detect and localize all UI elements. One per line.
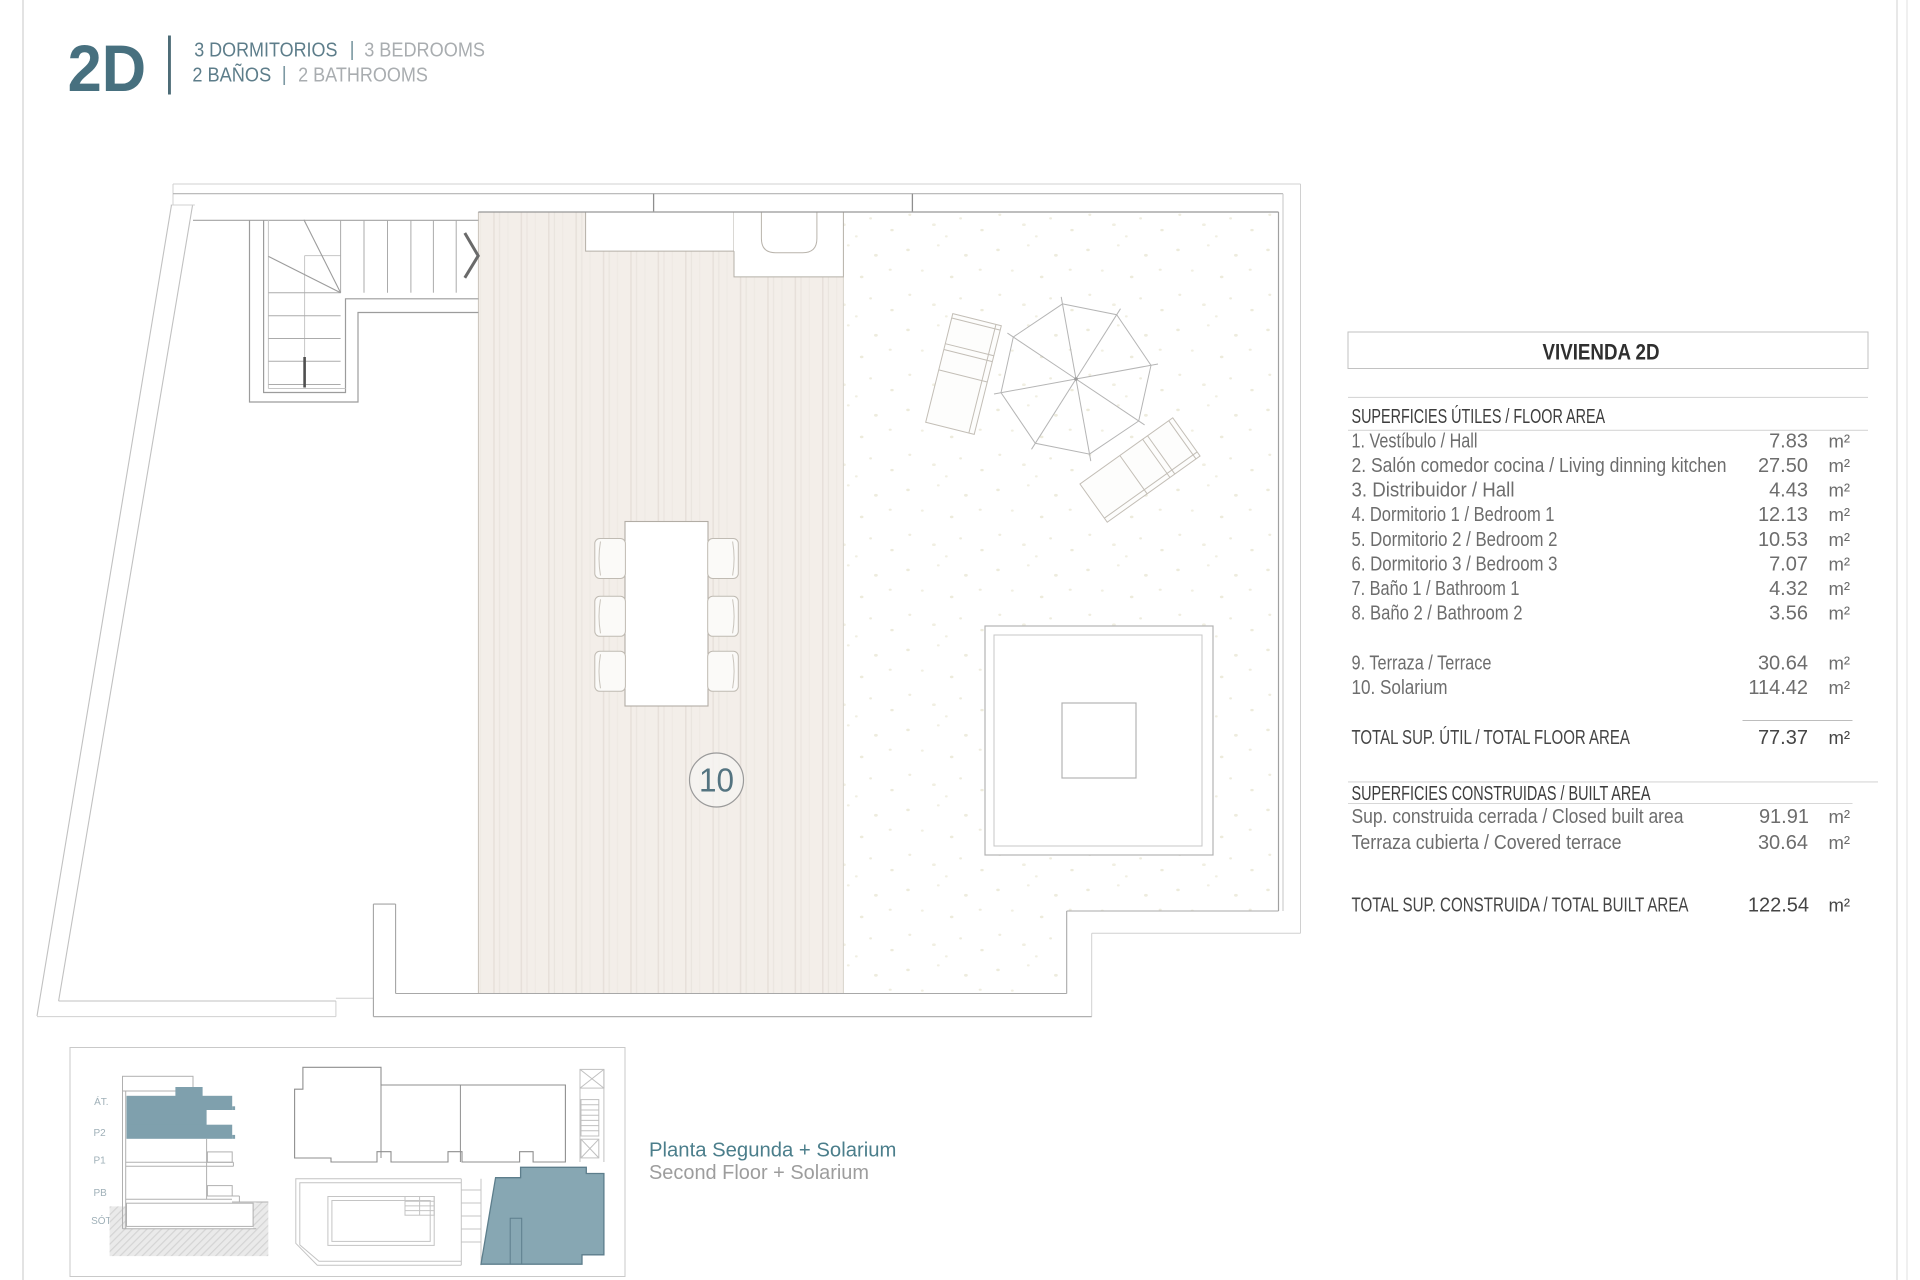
svg-text:77.37: 77.37 — [1758, 727, 1808, 749]
svg-text:7. Baño 1 / Bathroom 1: 7. Baño 1 / Bathroom 1 — [1352, 578, 1520, 600]
svg-text:114.42: 114.42 — [1748, 677, 1808, 699]
svg-text:P1: P1 — [94, 1156, 107, 1167]
svg-text:12.13: 12.13 — [1758, 504, 1808, 526]
svg-text:1. Vestíbulo / Hall: 1. Vestíbulo / Hall — [1352, 431, 1478, 453]
svg-text:m²: m² — [1829, 677, 1851, 698]
svg-text:91.91: 91.91 — [1759, 806, 1809, 828]
svg-text:27.50: 27.50 — [1758, 455, 1808, 477]
svg-text:Sup. construida cerrada / Clos: Sup. construida cerrada / Closed built a… — [1352, 806, 1685, 828]
svg-text:m²: m² — [1829, 553, 1851, 574]
svg-text:7.07: 7.07 — [1769, 553, 1808, 575]
svg-text:3 BEDROOMS: 3 BEDROOMS — [364, 40, 485, 62]
svg-text:|: | — [350, 39, 355, 61]
svg-text:5. Dormitorio 2 / Bedroom 2: 5. Dormitorio 2 / Bedroom 2 — [1352, 529, 1558, 551]
svg-text:30.64: 30.64 — [1758, 652, 1808, 674]
svg-text:m²: m² — [1829, 727, 1851, 748]
svg-text:122.54: 122.54 — [1748, 895, 1809, 917]
svg-text:m²: m² — [1829, 504, 1851, 525]
svg-text:4. Dormitorio 1 / Bedroom 1: 4. Dormitorio 1 / Bedroom 1 — [1352, 504, 1555, 526]
svg-text:3 DORMITORIOS: 3 DORMITORIOS — [194, 40, 337, 62]
svg-text:m²: m² — [1829, 832, 1851, 853]
svg-text:PB: PB — [94, 1188, 108, 1199]
svg-text:10.53: 10.53 — [1758, 529, 1808, 551]
svg-text:P2: P2 — [94, 1128, 107, 1139]
svg-text:3.56: 3.56 — [1769, 603, 1808, 625]
svg-text:2 BAÑOS: 2 BAÑOS — [192, 62, 271, 86]
svg-text:VIVIENDA 2D: VIVIENDA 2D — [1543, 340, 1660, 365]
svg-text:Terraza cubierta / Covered ter: Terraza cubierta / Covered terrace — [1352, 832, 1622, 854]
svg-text:m²: m² — [1829, 806, 1851, 827]
svg-text:m²: m² — [1829, 603, 1851, 624]
svg-text:ÁT.: ÁT. — [94, 1095, 108, 1108]
svg-text:m²: m² — [1829, 480, 1851, 501]
svg-text:2. Salón comedor cocina / Livi: 2. Salón comedor cocina / Living dinning… — [1352, 455, 1727, 477]
svg-text:8. Baño 2 / Bathroom 2: 8. Baño 2 / Bathroom 2 — [1352, 603, 1523, 625]
svg-text:m²: m² — [1829, 652, 1851, 673]
svg-text:Second Floor + Solarium: Second Floor + Solarium — [649, 1161, 869, 1184]
svg-text:3. Distribuidor / Hall: 3. Distribuidor / Hall — [1352, 480, 1515, 502]
svg-text:m²: m² — [1829, 455, 1851, 476]
svg-text:4.43: 4.43 — [1769, 480, 1808, 502]
svg-text:9. Terraza / Terrace: 9. Terraza / Terrace — [1352, 652, 1492, 674]
svg-text:2 BATHROOMS: 2 BATHROOMS — [298, 64, 428, 86]
svg-text:2D: 2D — [68, 31, 147, 105]
svg-text:4.32: 4.32 — [1769, 578, 1808, 600]
svg-text:TOTAL SUP. ÚTIL / TOTAL FLOOR: TOTAL SUP. ÚTIL / TOTAL FLOOR AREA — [1352, 726, 1631, 749]
svg-text:10: 10 — [699, 762, 734, 799]
svg-text:SUPERFICIES ÚTILES / FLOOR ARE: SUPERFICIES ÚTILES / FLOOR AREA — [1352, 405, 1606, 428]
svg-text:10. Solarium: 10. Solarium — [1352, 677, 1448, 699]
svg-text:Planta Segunda + Solarium: Planta Segunda + Solarium — [649, 1139, 896, 1162]
svg-text:30.64: 30.64 — [1758, 832, 1808, 854]
svg-text:m²: m² — [1829, 895, 1851, 916]
svg-text:7.83: 7.83 — [1769, 431, 1808, 453]
svg-text:m²: m² — [1829, 529, 1851, 550]
svg-text:m²: m² — [1829, 431, 1851, 452]
svg-text:|: | — [282, 64, 287, 86]
svg-text:6. Dormitorio 3 / Bedroom 3: 6. Dormitorio 3 / Bedroom 3 — [1352, 553, 1558, 575]
svg-text:SUPERFICIES CONSTRUIDAS / BUIL: SUPERFICIES CONSTRUIDAS / BUILT AREA — [1352, 782, 1651, 805]
svg-text:m²: m² — [1829, 578, 1851, 599]
svg-text:TOTAL SUP. CONSTRUIDA / TOTAL: TOTAL SUP. CONSTRUIDA / TOTAL BUILT AREA — [1352, 895, 1689, 917]
